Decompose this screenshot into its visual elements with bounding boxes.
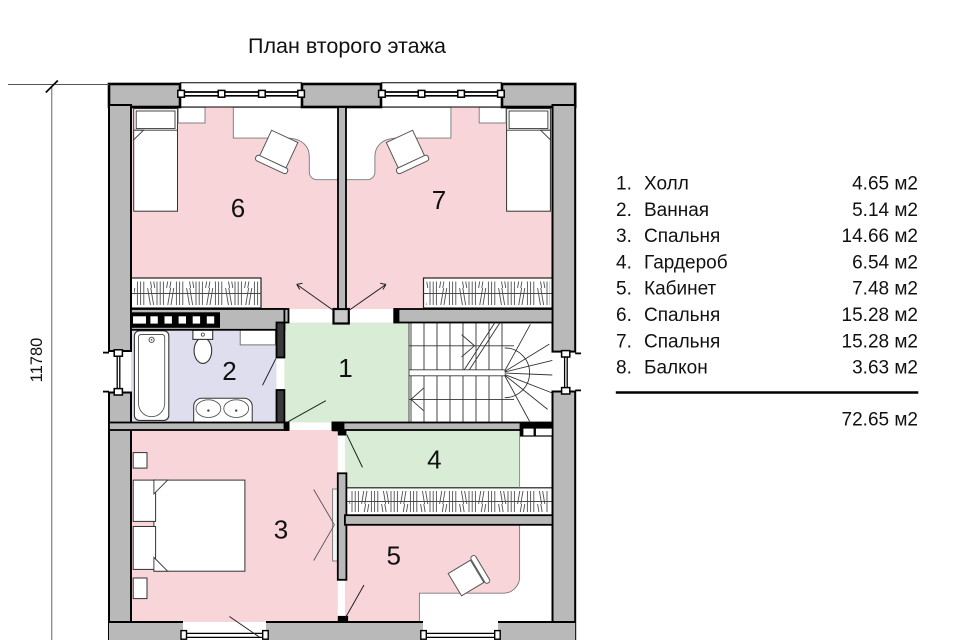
svg-text:1: 1 (338, 353, 352, 383)
svg-text:3: 3 (274, 515, 288, 545)
svg-text:6.: 6. (616, 305, 632, 326)
svg-text:Спальня: Спальня (644, 226, 720, 247)
svg-text:4.: 4. (616, 252, 632, 273)
svg-text:4.65 м2: 4.65 м2 (852, 174, 918, 195)
svg-text:Кабинет: Кабинет (644, 279, 717, 300)
svg-text:Ванная: Ванная (644, 200, 709, 221)
svg-text:8.: 8. (616, 358, 632, 379)
svg-text:6.54 м2: 6.54 м2 (852, 252, 918, 273)
svg-text:3.: 3. (616, 226, 632, 247)
svg-text:Балкон: Балкон (644, 358, 708, 379)
svg-text:2: 2 (222, 356, 236, 386)
svg-text:7.: 7. (616, 331, 632, 352)
svg-text:6: 6 (231, 193, 245, 223)
svg-text:Спальня: Спальня (644, 331, 720, 352)
svg-text:11780: 11780 (28, 338, 46, 383)
svg-text:15.28 м2: 15.28 м2 (842, 331, 918, 352)
svg-text:5.: 5. (616, 279, 632, 300)
svg-text:7.48 м2: 7.48 м2 (852, 279, 918, 300)
svg-text:Спальня: Спальня (644, 305, 720, 326)
svg-text:2.: 2. (616, 200, 632, 221)
svg-text:1.: 1. (616, 174, 632, 195)
svg-text:4: 4 (427, 445, 441, 475)
svg-text:7: 7 (432, 185, 446, 215)
svg-text:5: 5 (386, 541, 400, 571)
svg-text:72.65 м2: 72.65 м2 (842, 410, 918, 431)
svg-text:5.14 м2: 5.14 м2 (852, 200, 918, 221)
svg-text:План второго этажа: План второго этажа (248, 34, 446, 58)
svg-text:3.63 м2: 3.63 м2 (852, 358, 918, 379)
svg-text:14.66 м2: 14.66 м2 (842, 226, 918, 247)
svg-text:Холл: Холл (644, 174, 689, 195)
svg-text:Гардероб: Гардероб (644, 252, 728, 273)
svg-text:15.28 м2: 15.28 м2 (842, 305, 918, 326)
